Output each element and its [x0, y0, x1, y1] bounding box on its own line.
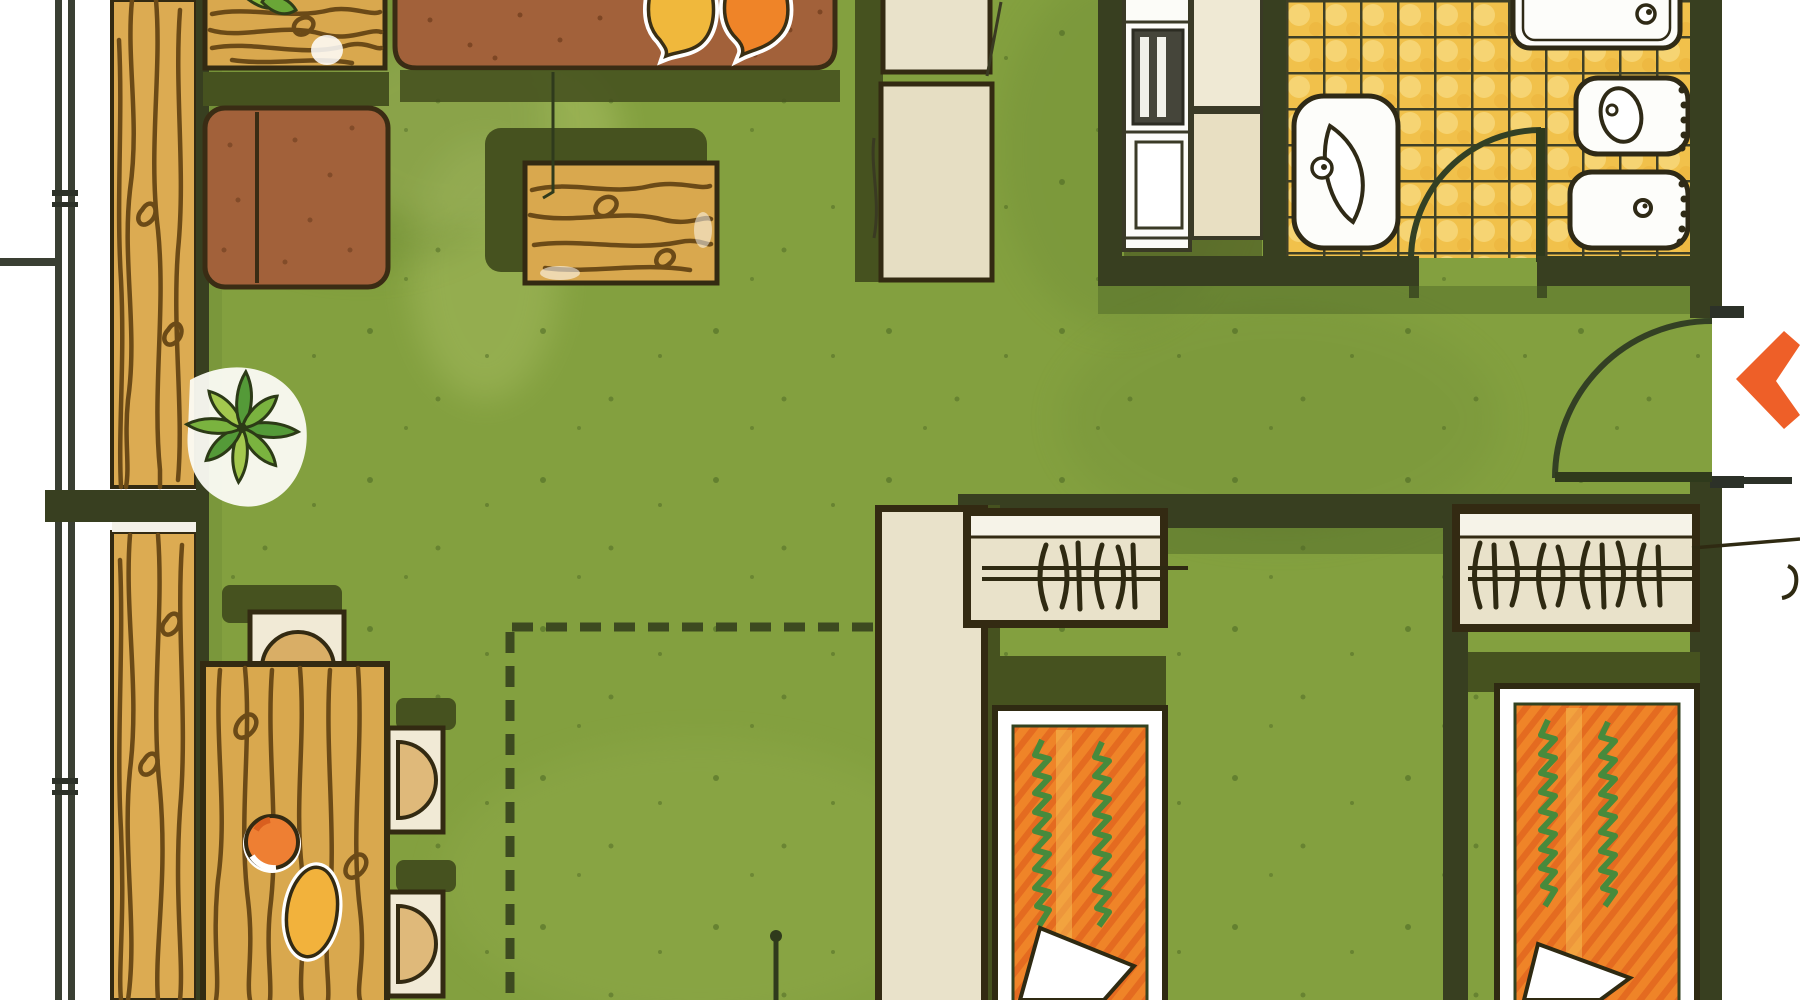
- potted-plant: [186, 367, 307, 506]
- kitchen: [1124, 0, 1262, 256]
- dining-table: [203, 664, 387, 1000]
- coffee-table: [485, 128, 717, 283]
- chair-shadow: [396, 860, 456, 892]
- balcony-decking-top: [112, 0, 196, 487]
- sideboard-shadow: [203, 72, 389, 106]
- wardrobe-1: [963, 508, 1188, 628]
- storage-column-upper: [855, 0, 1001, 282]
- dining-chair-1: [388, 728, 443, 832]
- chair-shadow: [396, 698, 456, 730]
- armchair: [205, 108, 388, 287]
- floor-plan-illustration: [0, 0, 1800, 1000]
- dining-chair-2: [388, 892, 443, 996]
- balcony-wall-stub: [45, 490, 209, 522]
- bidet: [1570, 172, 1688, 248]
- bathroom: [1286, 0, 1690, 262]
- balcony-decking-bottom: [112, 532, 196, 1000]
- leader-line-door: [1744, 477, 1792, 484]
- wall-right-top: [1690, 0, 1722, 318]
- bathtub: [1513, 0, 1680, 48]
- kitchen-counters: [1192, 0, 1262, 238]
- wall-kitchen-partition: [1098, 0, 1122, 258]
- stove-unit: [1124, 0, 1190, 250]
- bed-2: [1468, 652, 1700, 1000]
- sofa-shadow: [400, 70, 840, 102]
- wall-kitchen-bath-divider: [1263, 0, 1286, 264]
- sofa-daybed: [395, 0, 835, 68]
- balcony-divider-line: [0, 258, 55, 266]
- plate-round: [243, 815, 301, 873]
- wall-hall-north-b: [1541, 256, 1692, 286]
- bed-1: [990, 656, 1166, 1000]
- wall-hall-north-a: [1098, 256, 1414, 286]
- toilet: [1576, 78, 1688, 154]
- wash-basin: [1294, 96, 1398, 248]
